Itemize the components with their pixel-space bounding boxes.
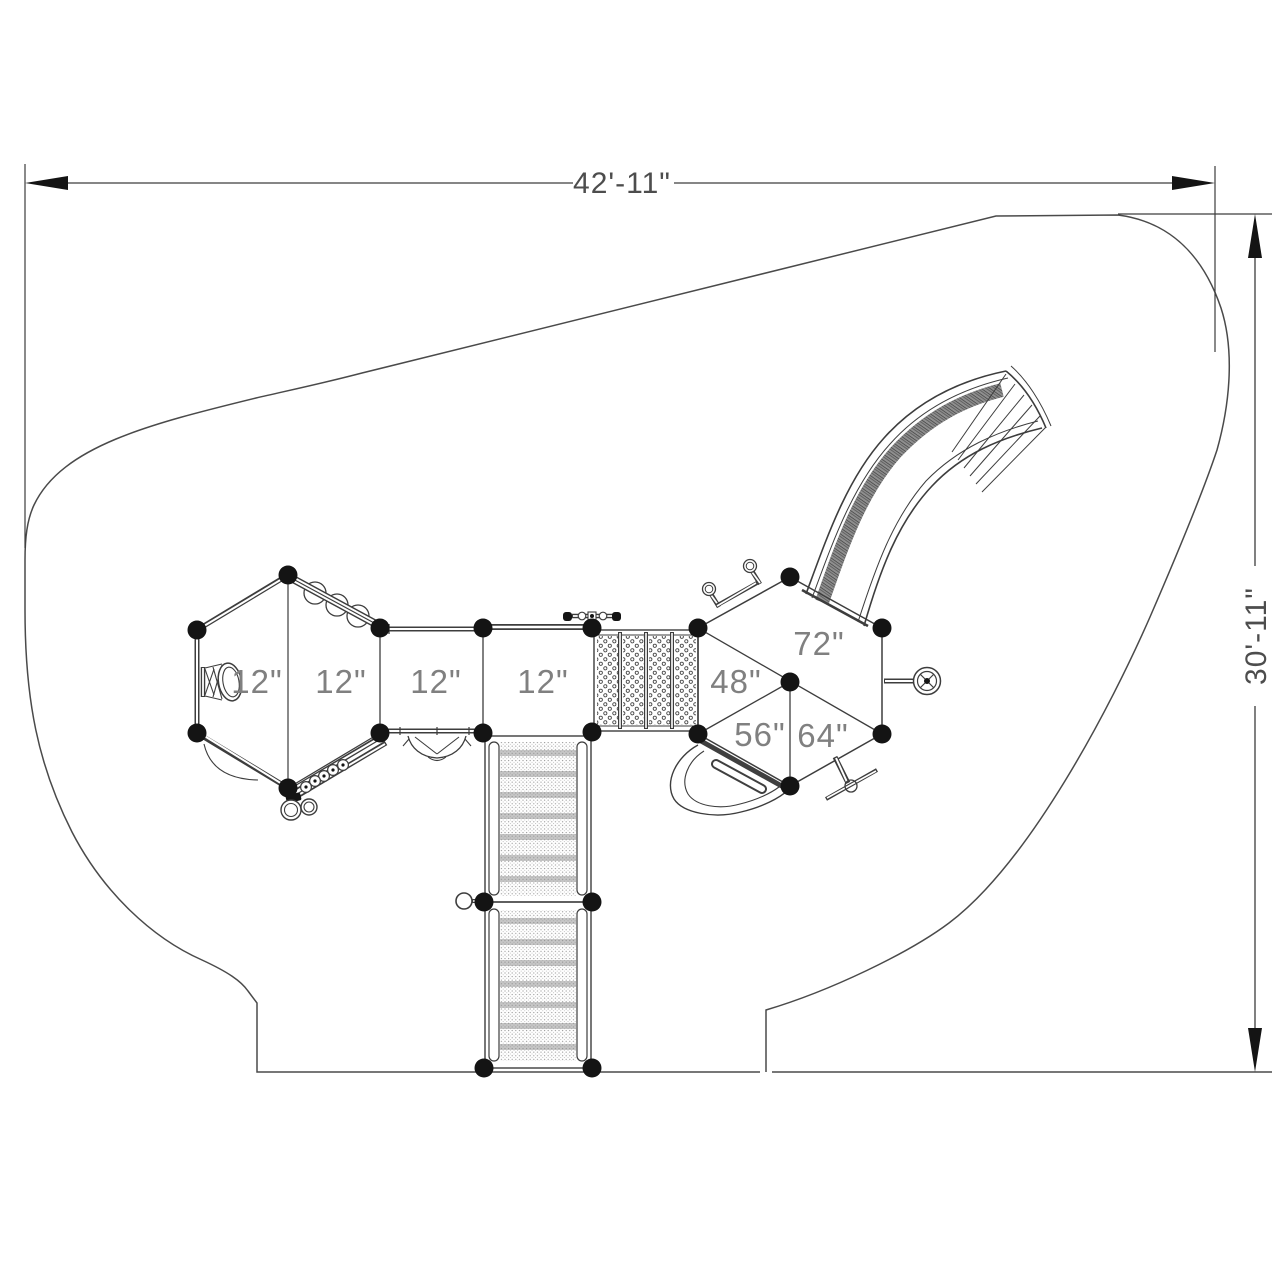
dimension-arrow-left-icon <box>25 176 68 190</box>
playground-plan-drawing: 42'-11" 30'-11" <box>0 0 1283 1275</box>
entry-handrails <box>703 560 761 608</box>
dimension-arrow-down-icon <box>1248 1028 1262 1072</box>
deck-height-label: 72" <box>793 625 844 662</box>
mesh-bridge <box>594 630 698 731</box>
spring-toy <box>826 757 877 799</box>
deck-height-label: 64" <box>797 717 848 754</box>
width-dimension: 42'-11" <box>25 164 1215 548</box>
slide-end-cap <box>1006 371 1046 428</box>
dimension-arrow-up-icon <box>1248 214 1262 258</box>
deck-height-label: 12" <box>410 663 461 700</box>
flower-climber <box>290 736 386 798</box>
slide-end-cap-outer <box>1011 366 1051 426</box>
slide-base-plate <box>802 590 868 626</box>
steering-wheel <box>884 668 941 695</box>
height-dimension-label: 30'-11" <box>1240 587 1273 685</box>
deck-height-label: 12" <box>231 663 282 700</box>
height-dimension: 30'-11" <box>1118 214 1273 1072</box>
dimension-arrow-right-icon <box>1172 176 1215 190</box>
square-deck-1: 12" <box>387 624 483 761</box>
plan-svg: 42'-11" 30'-11" <box>0 0 1283 1275</box>
deck-height-label: 48" <box>710 663 761 700</box>
slide-rail-right <box>858 421 1038 622</box>
slide-bedway-band <box>822 390 1002 602</box>
tower-internal-lines <box>698 628 882 786</box>
crawl-panel <box>403 736 471 761</box>
curved-slide <box>802 366 1051 626</box>
swing-gate-arc <box>204 744 258 780</box>
width-dimension-label: 42'-11" <box>573 167 671 200</box>
deck-height-label: 12" <box>315 663 366 700</box>
ramp-cleats <box>500 753 576 1047</box>
deck-height-label: 56" <box>734 716 785 753</box>
deck-height-label: 12" <box>517 663 568 700</box>
